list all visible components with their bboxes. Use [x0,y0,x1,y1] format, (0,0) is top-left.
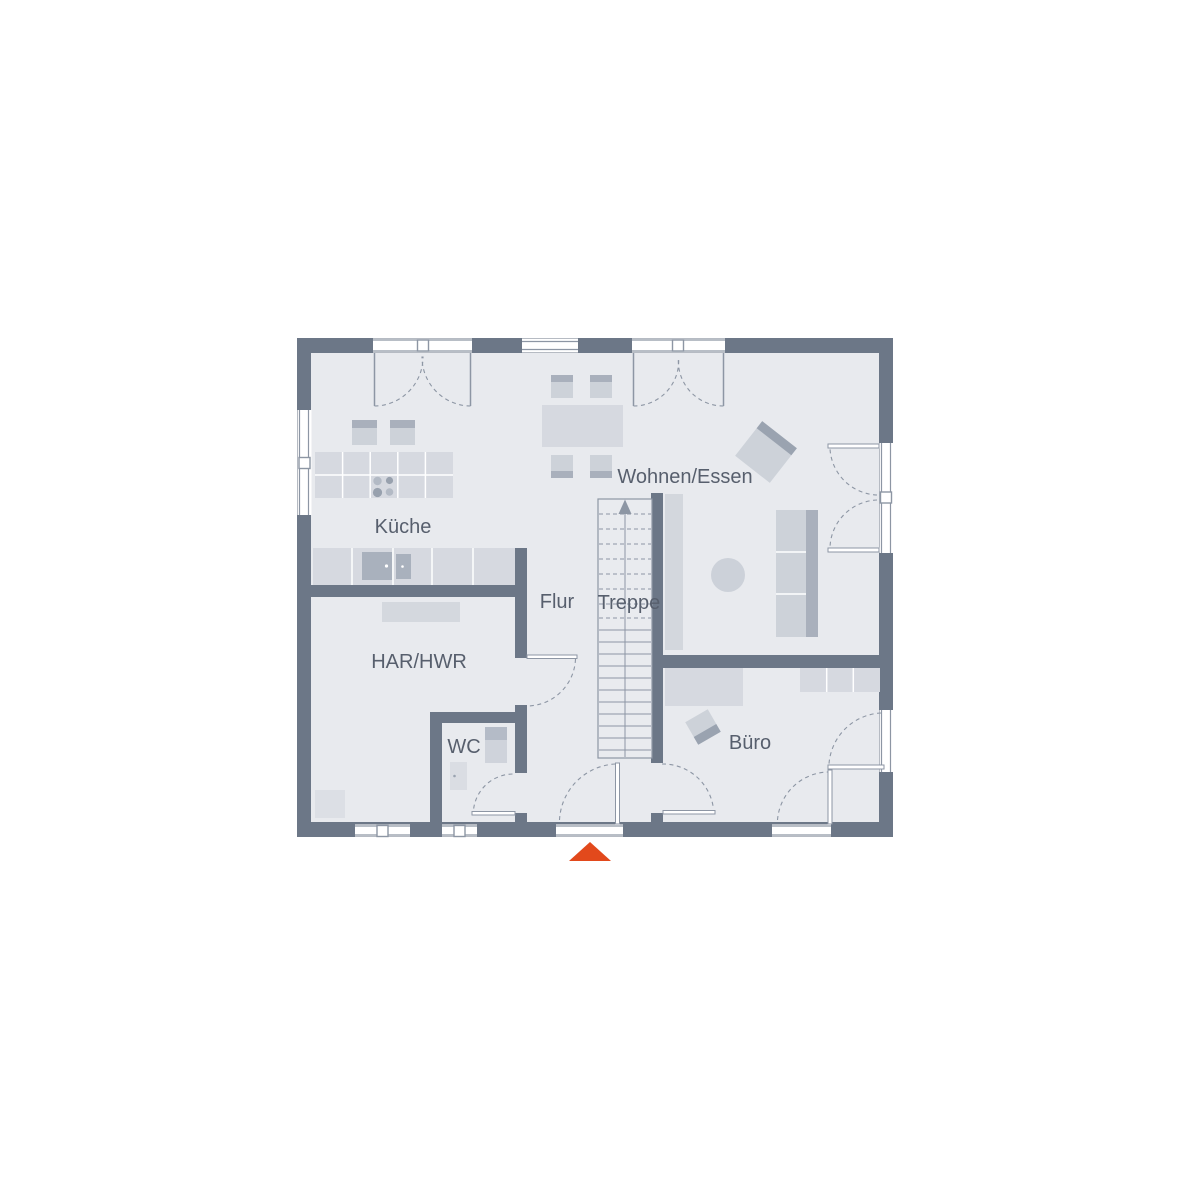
utility-shelf [382,602,460,622]
floor-plan-page: Küche Wohnen/Essen Flur Treppe HAR/HWR W… [0,0,1200,1200]
desk [665,668,743,706]
window-kitchen [298,410,312,515]
window-utility [355,825,410,837]
label-treppe: Treppe [598,592,661,614]
label-flur: Flur [540,591,575,613]
entrance-marker-icon [569,842,611,861]
kitchen-island [315,452,453,498]
toilet-icon [450,762,467,790]
label-har-hwr: HAR/HWR [371,651,467,673]
label-kueche: Küche [375,516,432,538]
floor-plan-drawing: Küche Wohnen/Essen Flur Treppe HAR/HWR W… [0,0,1200,1200]
sofa [776,510,818,637]
staircase [598,499,652,758]
office-shelf [800,668,880,692]
label-buero: Büro [729,732,771,754]
label-wc: WC [447,736,480,758]
window-dining [522,339,578,353]
utility-appliance [315,790,345,818]
sideboard [665,494,683,650]
kitchen-counter [313,548,515,585]
label-wohnen-essen: Wohnen/Essen [617,466,752,488]
window-wc [442,825,477,837]
coffee-table [711,558,745,592]
dining-table [542,405,623,447]
washbasin-icon [485,727,507,740]
